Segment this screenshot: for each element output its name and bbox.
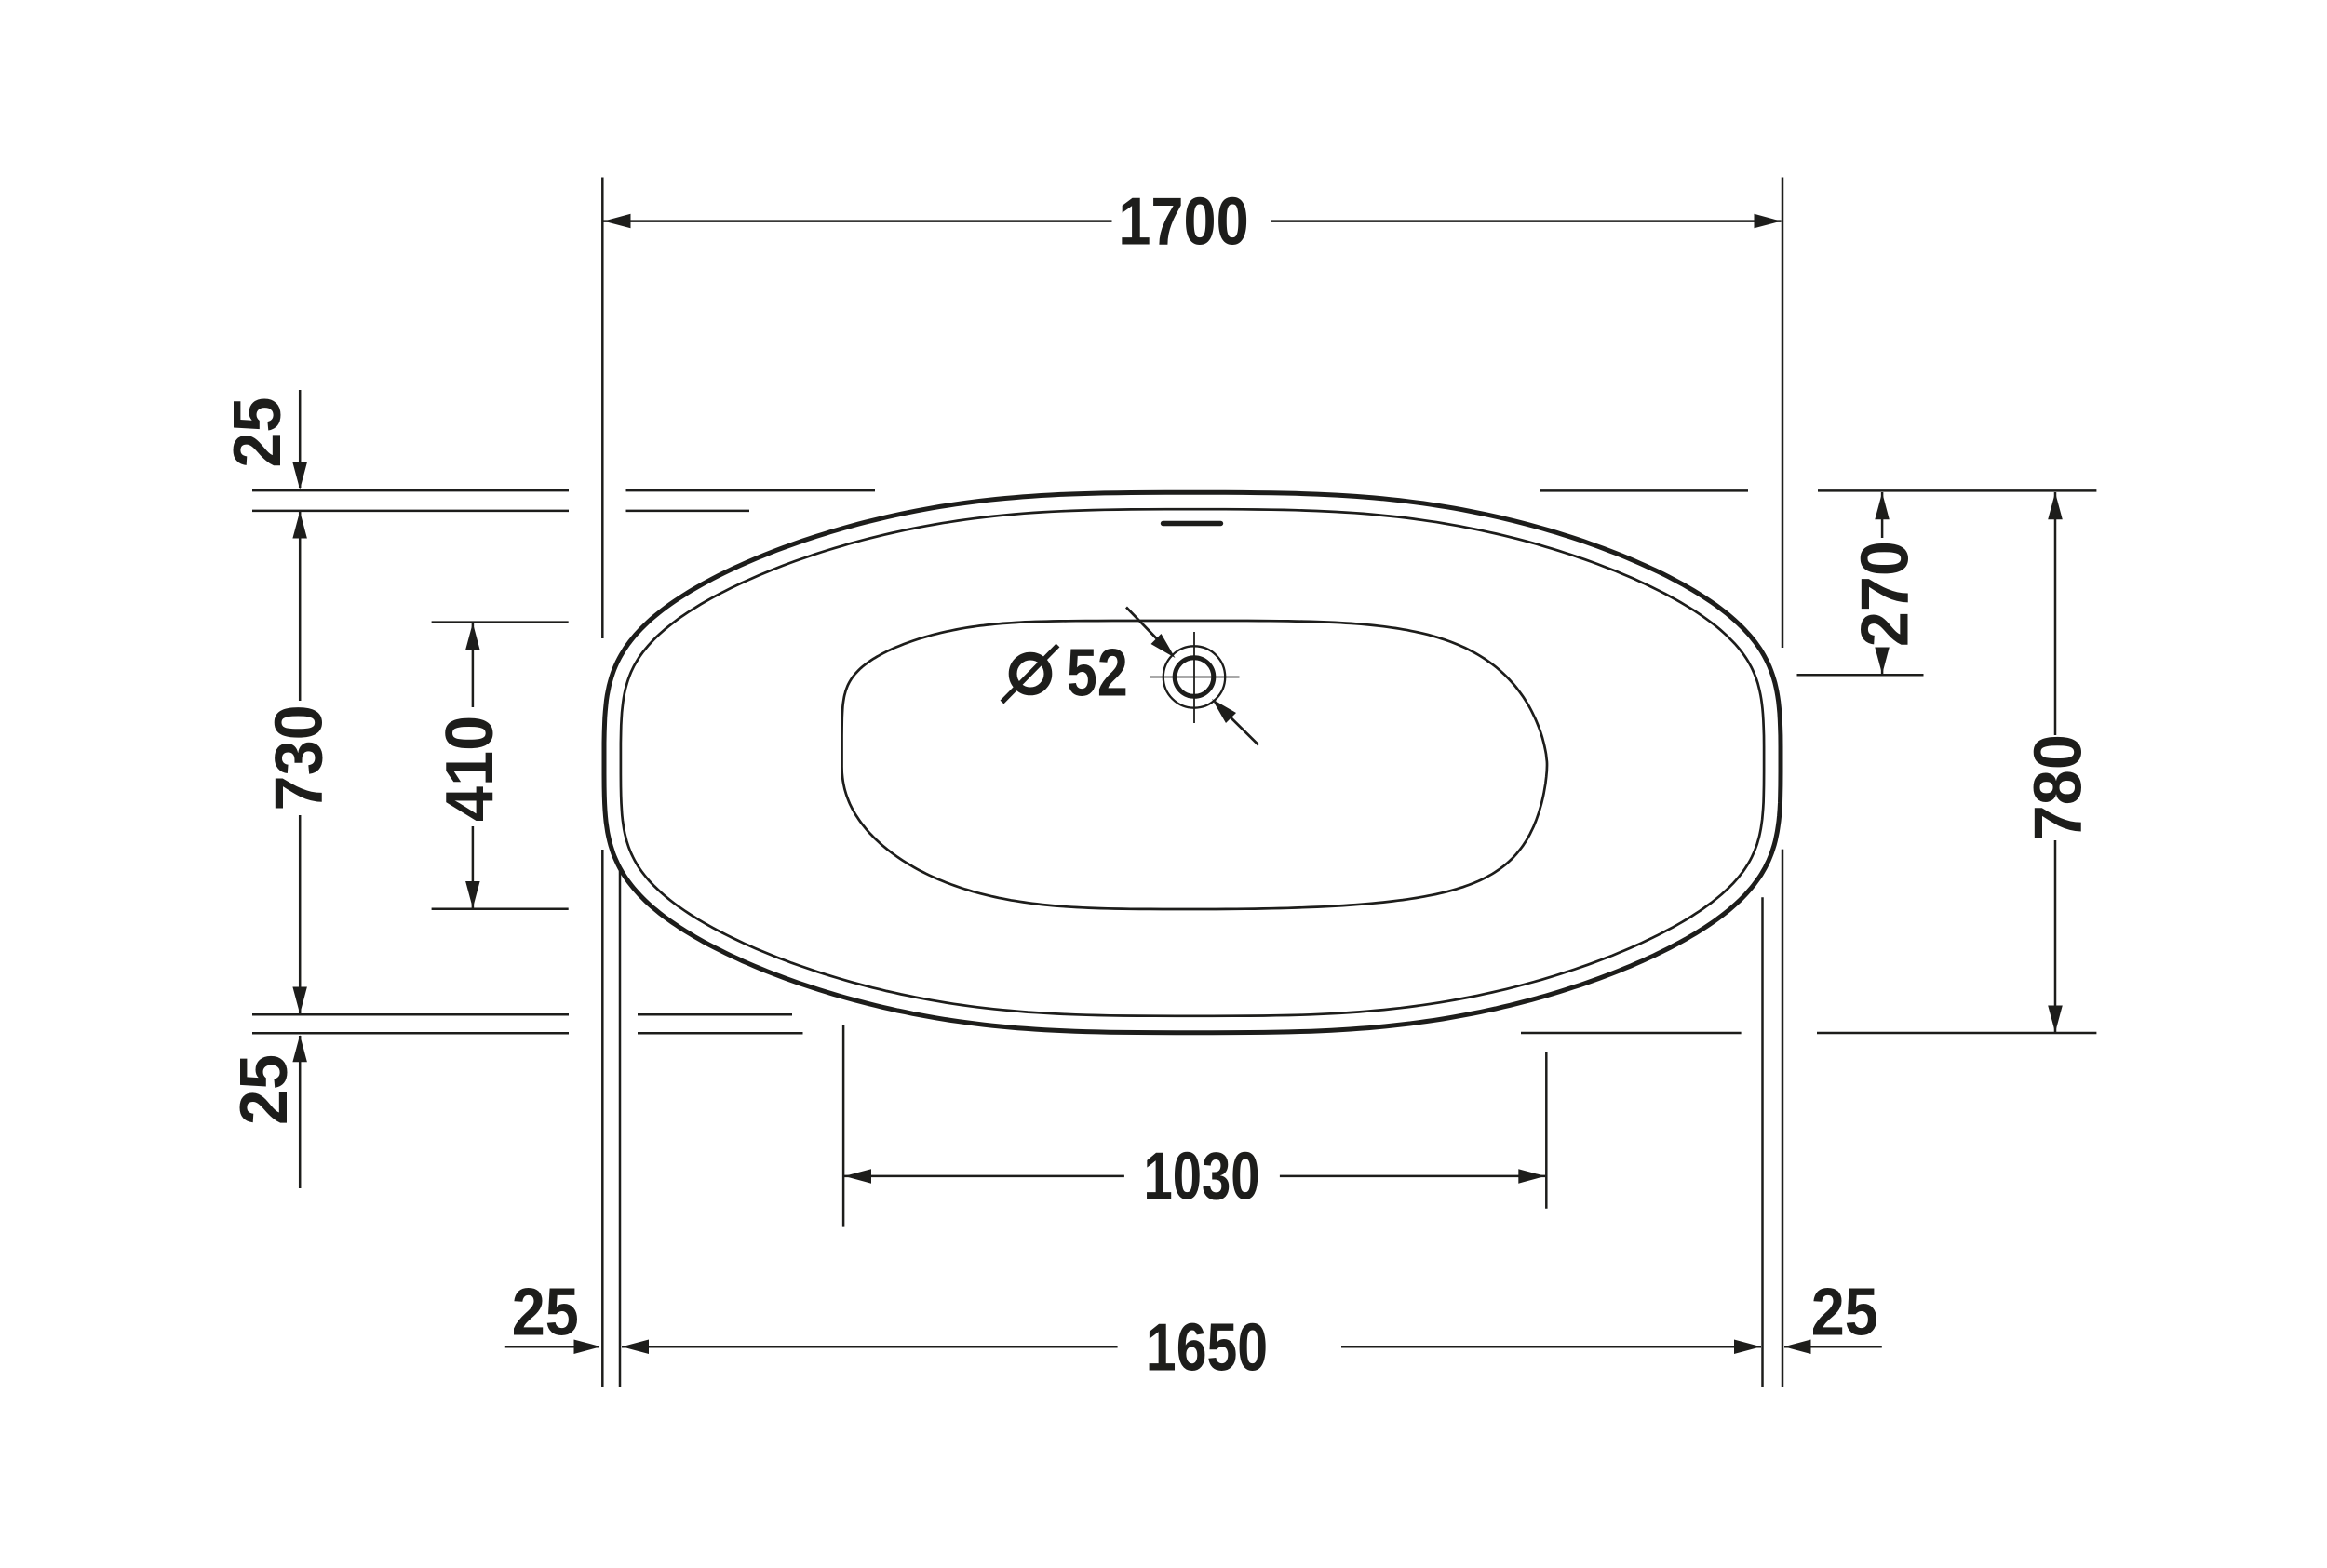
svg-text:25: 25: [225, 1054, 301, 1125]
svg-text:25: 25: [219, 397, 294, 468]
svg-text:1030: 1030: [1143, 1139, 1259, 1213]
svg-text:780: 780: [2020, 734, 2095, 840]
svg-text:270: 270: [1847, 541, 1922, 647]
svg-text:52: 52: [1067, 635, 1128, 710]
svg-text:730: 730: [261, 704, 336, 811]
svg-text:410: 410: [431, 716, 506, 822]
svg-text:1650: 1650: [1146, 1309, 1268, 1385]
svg-text:25: 25: [512, 1274, 579, 1349]
svg-text:25: 25: [1811, 1274, 1878, 1349]
svg-text:1700: 1700: [1118, 184, 1248, 259]
